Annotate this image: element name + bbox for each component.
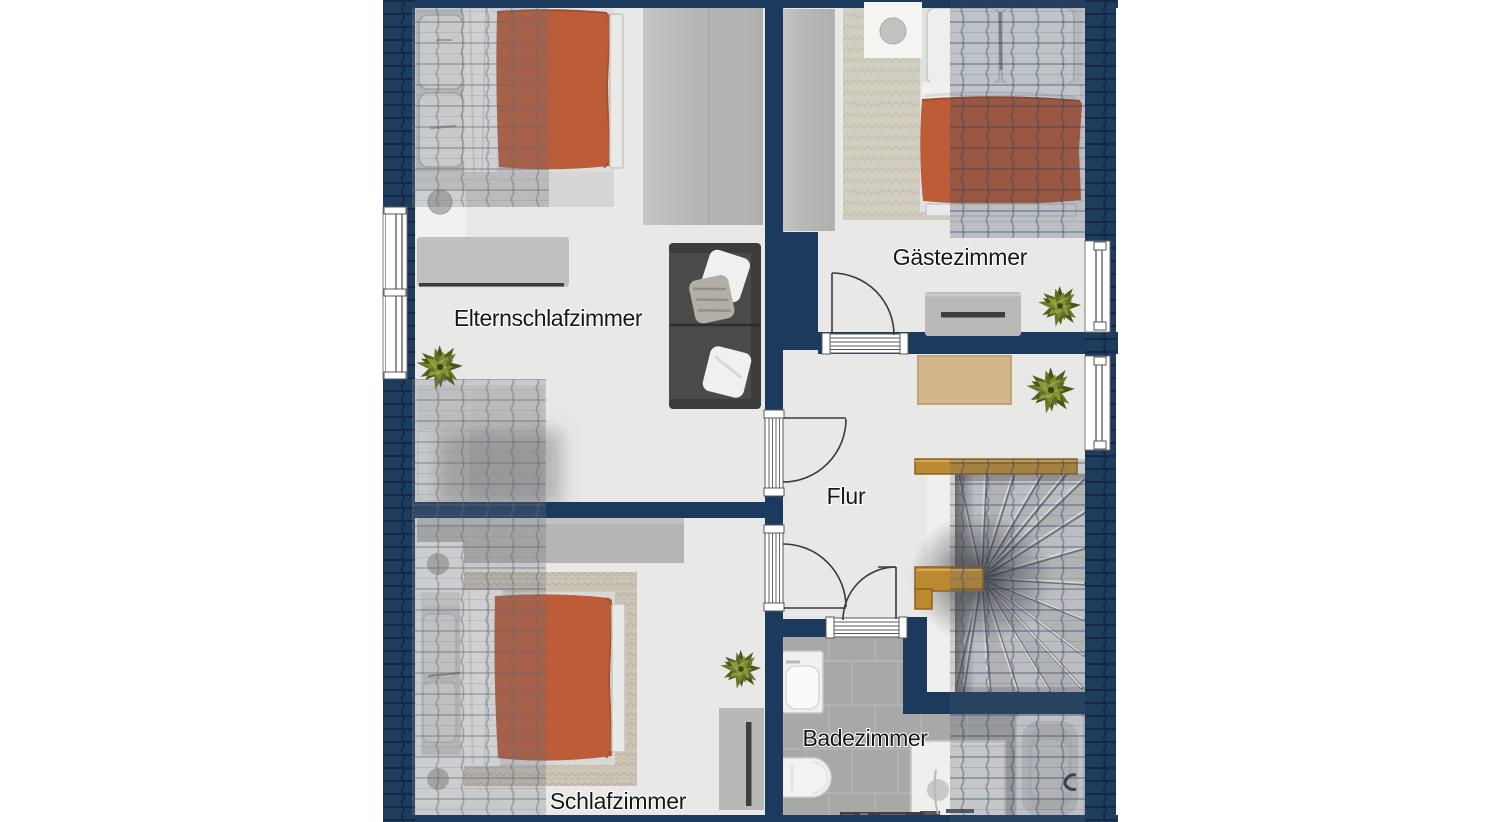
svg-text:Elternschlafzimmer: Elternschlafzimmer bbox=[454, 305, 643, 331]
svg-text:Schlafzimmer: Schlafzimmer bbox=[550, 788, 687, 814]
svg-text:Flur: Flur bbox=[827, 483, 866, 509]
svg-text:Gästezimmer: Gästezimmer bbox=[893, 244, 1028, 270]
svg-text:Badezimmer: Badezimmer bbox=[802, 725, 928, 751]
